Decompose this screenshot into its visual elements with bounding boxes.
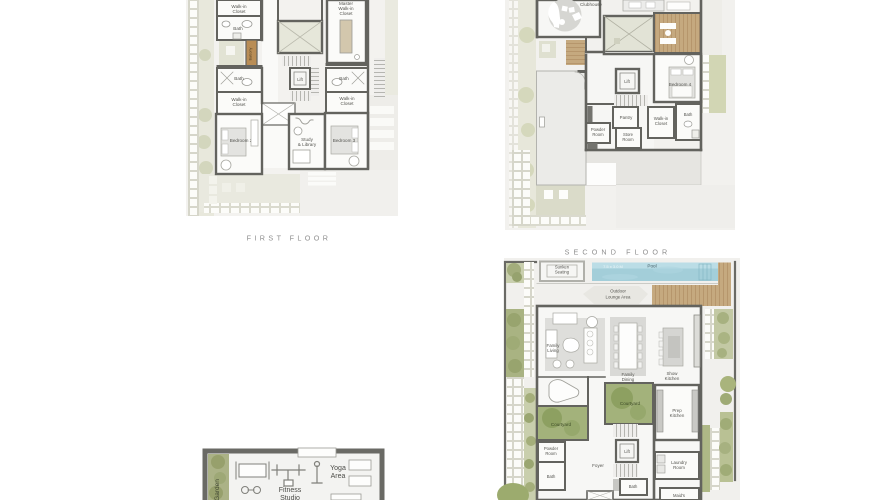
svg-text:Bath: Bath [339, 76, 349, 81]
svg-text:Bath: Bath [233, 26, 243, 31]
svg-text:Lift: Lift [624, 79, 630, 84]
svg-text:Lounge Area: Lounge Area [606, 295, 631, 300]
svg-text:SECOND FLOOR: SECOND FLOOR [565, 248, 672, 257]
svg-text:7.5 x 3.0 M: 7.5 x 3.0 M [603, 264, 623, 269]
svg-text:Garden: Garden [214, 479, 221, 500]
svg-text:Closet: Closet [339, 11, 353, 16]
svg-text:Seating: Seating [555, 270, 570, 275]
svg-text:Bedroom 4: Bedroom 4 [669, 82, 692, 87]
svg-text:Bath: Bath [684, 112, 693, 117]
svg-text:Kitchen: Kitchen [670, 413, 685, 418]
svg-text:Bedroom 3: Bedroom 3 [333, 138, 356, 143]
svg-text:Bath: Bath [629, 484, 638, 489]
svg-text:& Library: & Library [298, 142, 317, 147]
svg-text:Room: Room [545, 451, 557, 456]
svg-text:Closet: Closet [655, 121, 668, 126]
svg-text:FIRST FLOOR: FIRST FLOOR [247, 234, 332, 243]
svg-text:Area: Area [331, 473, 346, 480]
svg-text:Lift: Lift [624, 449, 630, 454]
svg-text:Foyer: Foyer [592, 463, 604, 468]
svg-text:Kitchen: Kitchen [665, 376, 680, 381]
svg-text:Pool: Pool [647, 264, 656, 269]
svg-text:Closet: Closet [232, 102, 246, 107]
svg-text:Yoga: Yoga [330, 465, 346, 472]
svg-text:Living: Living [547, 348, 559, 353]
svg-text:Courtyard: Courtyard [551, 422, 572, 427]
svg-text:Dining: Dining [622, 377, 635, 382]
svg-text:Bedroom 2: Bedroom 2 [230, 138, 253, 143]
svg-text:Pantry: Pantry [620, 115, 633, 120]
svg-text:Courtyard: Courtyard [620, 401, 641, 406]
svg-text:Room: Room [673, 465, 685, 470]
svg-text:Room: Room [622, 137, 634, 142]
svg-text:Bath: Bath [547, 474, 556, 479]
svg-text:Studio: Studio [280, 495, 300, 500]
svg-text:Closet: Closet [340, 101, 354, 106]
svg-text:Lift: Lift [297, 77, 303, 82]
svg-text:Balcony: Balcony [249, 47, 253, 60]
svg-text:Outdoor: Outdoor [610, 289, 626, 294]
svg-text:Maid's: Maid's [673, 493, 685, 498]
svg-text:Fitness: Fitness [279, 487, 302, 494]
svg-text:Clubhouse: Clubhouse [580, 2, 602, 7]
svg-text:Room: Room [592, 132, 604, 137]
svg-text:Bath: Bath [234, 76, 244, 81]
svg-text:Closet: Closet [232, 9, 246, 14]
